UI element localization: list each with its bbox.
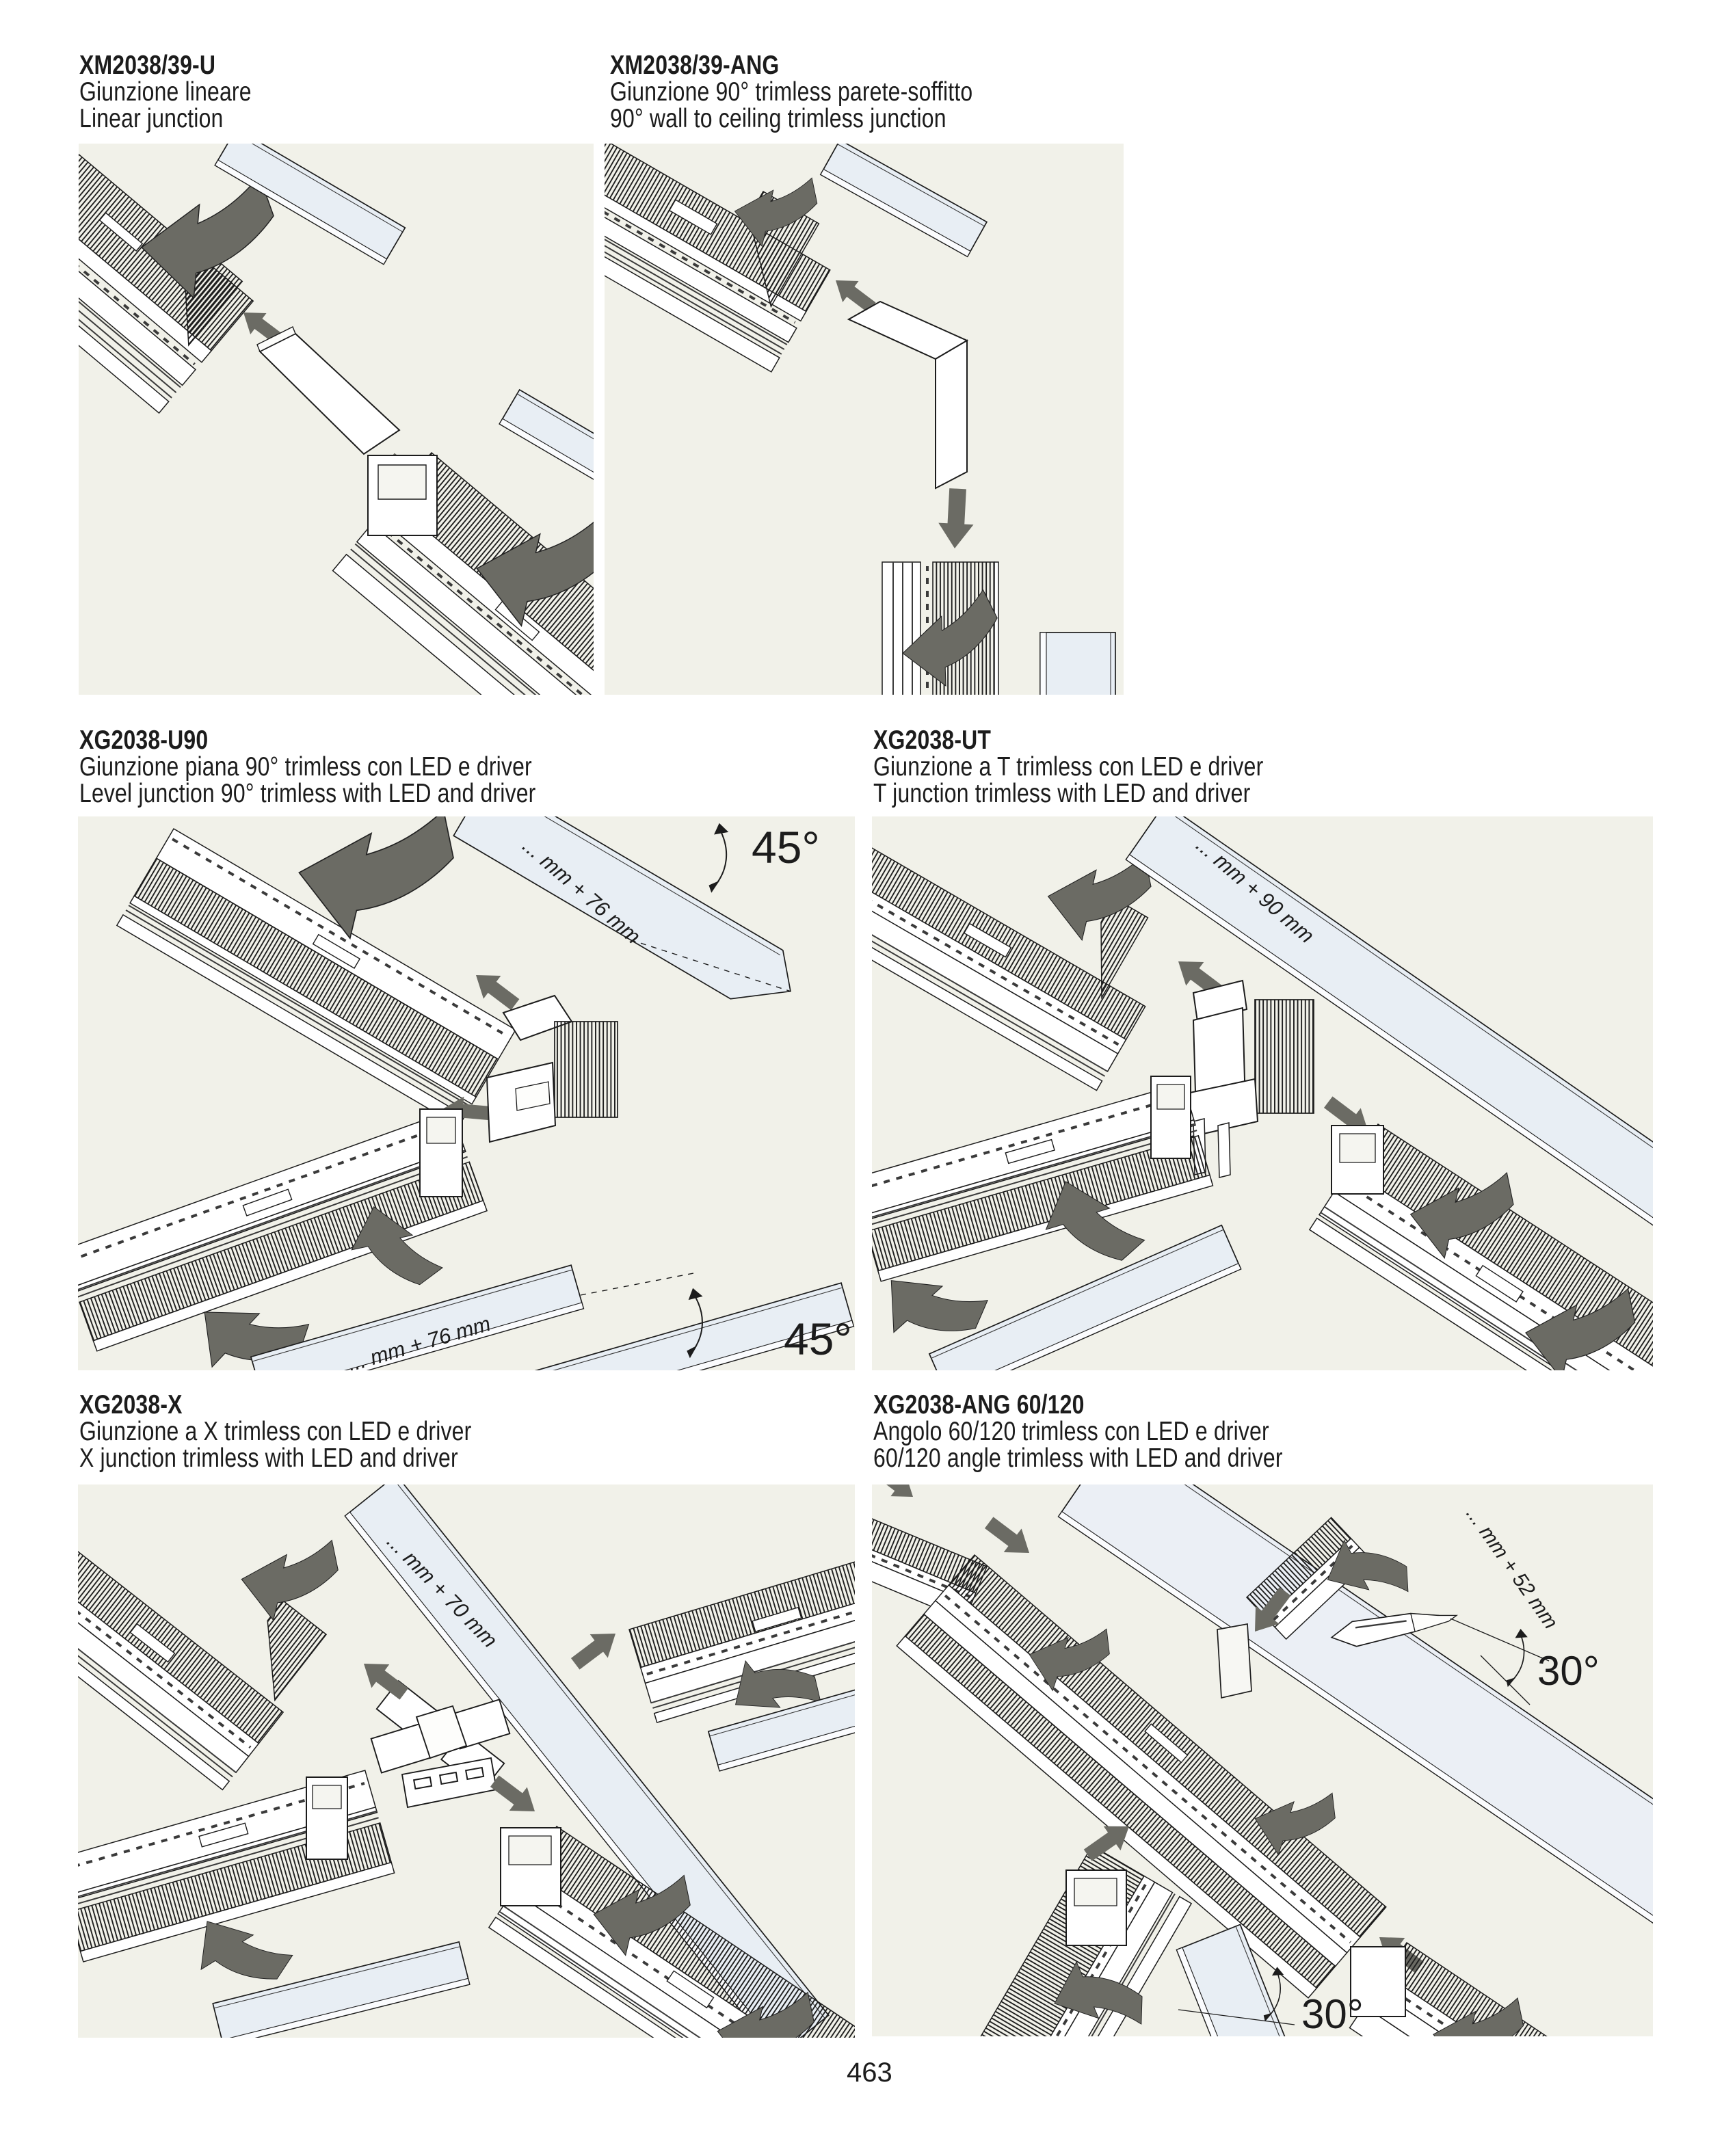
- svg-text:45°: 45°: [784, 1314, 852, 1364]
- svg-text:30°: 30°: [1301, 1991, 1364, 2036]
- svg-text:45°: 45°: [752, 822, 820, 873]
- svg-text:30°: 30°: [1537, 1648, 1600, 1694]
